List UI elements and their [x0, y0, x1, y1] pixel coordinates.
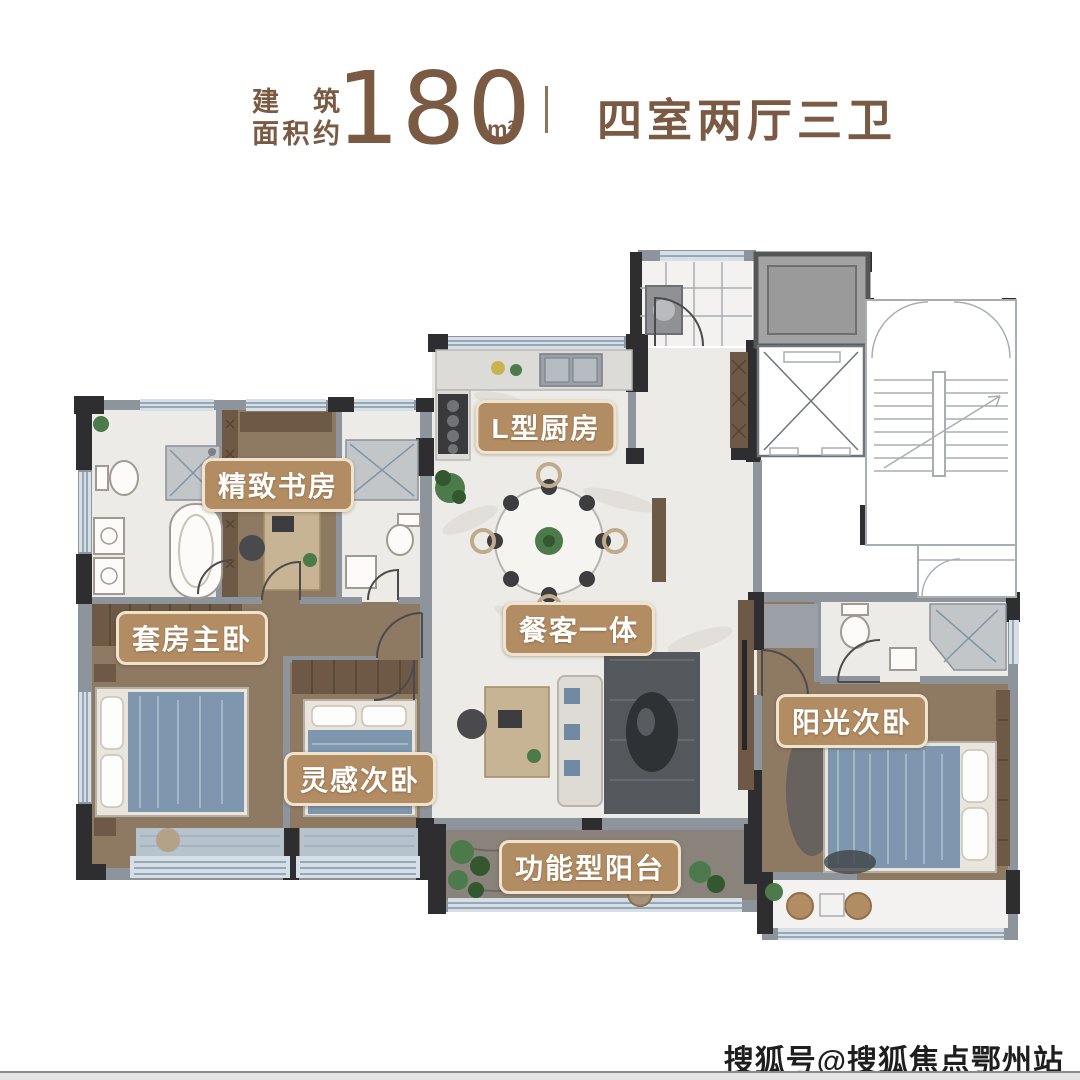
- window-entry: [660, 251, 744, 261]
- window-right-balcony: [778, 928, 1004, 940]
- sofa-icon: [558, 676, 602, 806]
- window-top-bath: [140, 399, 214, 411]
- desk-icon: [264, 506, 320, 590]
- window-left-bath: [79, 472, 91, 552]
- area-label-line2: 面积约: [252, 118, 340, 150]
- bottom-strip: [0, 1071, 1080, 1080]
- room-label-study: 精致书房: [202, 458, 354, 512]
- window-balcony: [448, 898, 742, 912]
- bay-seat: [300, 828, 418, 856]
- bay-window-master: [130, 856, 290, 878]
- room-label-sunny-bedroom: 阳光次卧: [776, 694, 928, 748]
- area-label-line1: 建筑: [252, 86, 340, 118]
- bay-window-bedroom2: [296, 856, 420, 878]
- sink-icon: [540, 354, 602, 386]
- bed-icon: [96, 688, 248, 816]
- coffee-table-icon: [626, 692, 678, 772]
- window-left-bedroom: [79, 692, 91, 802]
- area-unit: m²: [487, 116, 515, 143]
- ac-platform: [756, 254, 868, 346]
- area-label: 建筑 面积约: [252, 86, 340, 150]
- stove-icon: [438, 394, 468, 454]
- window-top-bath2: [354, 399, 414, 411]
- area-value: 180: [336, 50, 533, 167]
- elevator: [758, 346, 864, 456]
- layout-title: 四室两厅三卫: [597, 84, 897, 149]
- room-label-functional-balcony: 功能型阳台: [499, 840, 681, 894]
- tv-cabinet-icon: [738, 600, 754, 790]
- stairwell: [866, 300, 1016, 597]
- washer-icon: [646, 286, 682, 334]
- room-label-inspiration-bedroom: 灵感次卧: [284, 752, 436, 806]
- bathtub-icon: [170, 504, 222, 598]
- toilet-icon: [96, 461, 138, 495]
- floor-plan: [0, 0, 1080, 1080]
- window-bath3: [1009, 620, 1019, 664]
- shoe-cabinet: [730, 352, 748, 448]
- shower-icon: [346, 440, 418, 500]
- room-label-kitchen: L型厨房: [475, 400, 616, 454]
- toilet-icon: [841, 604, 869, 648]
- room-label-master-suite: 套房主卧: [116, 611, 268, 665]
- wardrobe: [996, 690, 1010, 866]
- header-divider: [545, 86, 548, 133]
- bed-icon: [824, 742, 996, 874]
- window-top-study: [246, 399, 326, 411]
- room-label-living-dining: 餐客一体: [503, 602, 655, 656]
- window-kitchen: [448, 337, 624, 349]
